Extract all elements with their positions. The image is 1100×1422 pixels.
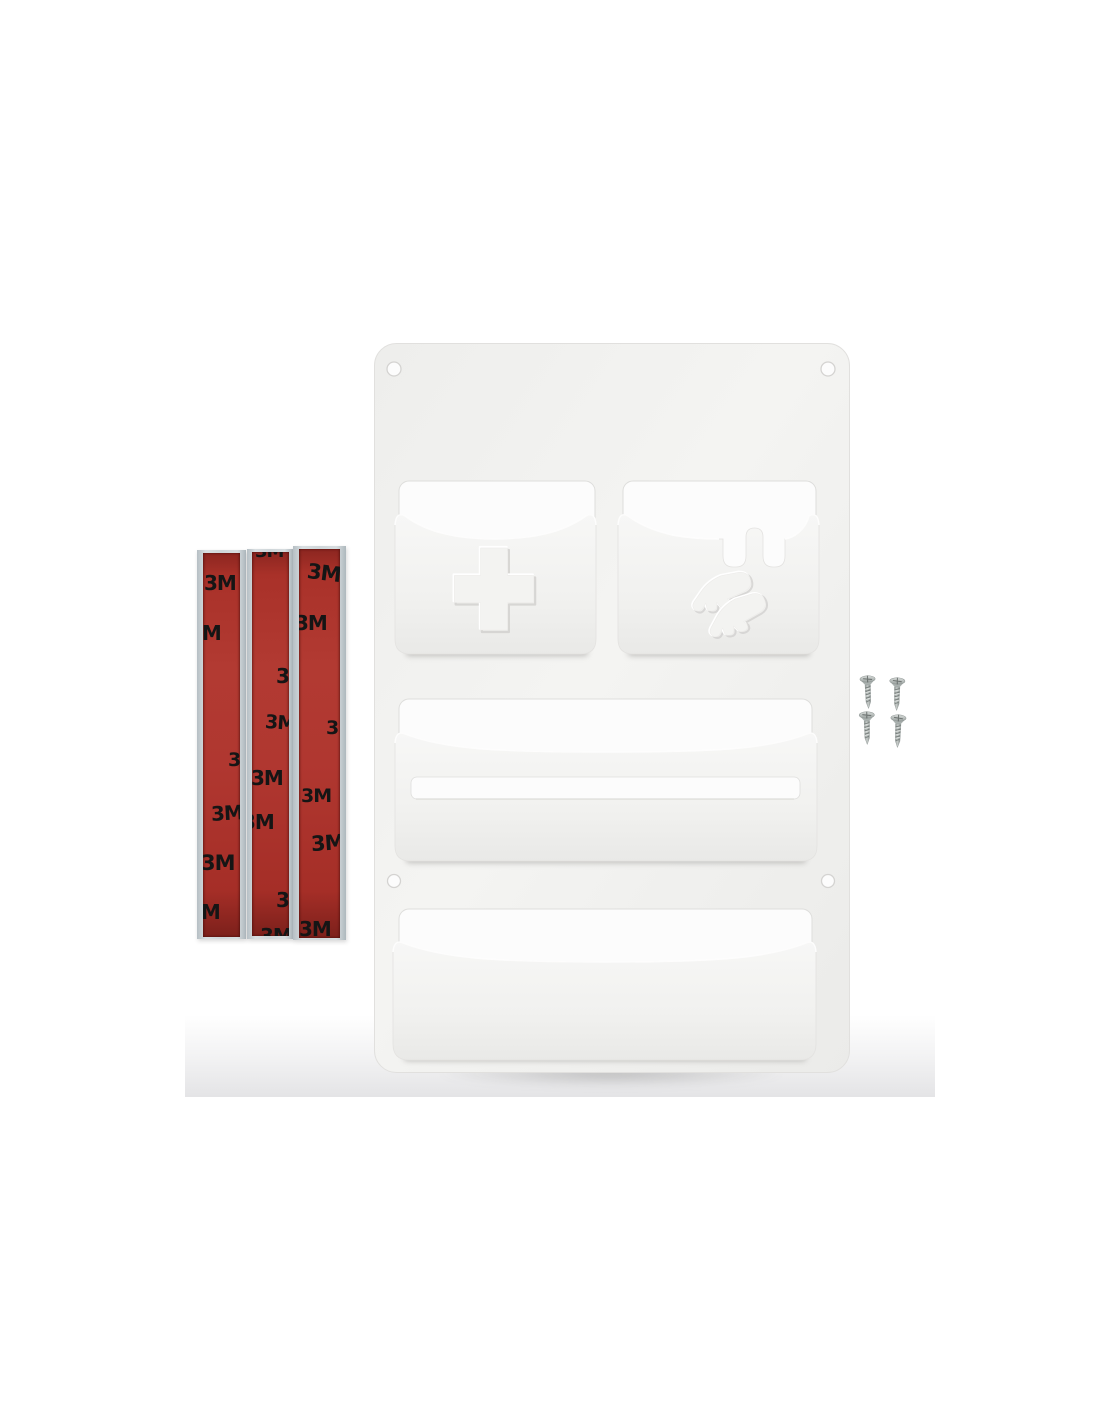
adhesive-strip-2: 3M 3M 3M 3M 3M 3M 3M: [247, 549, 293, 939]
screw-4: [890, 715, 906, 748]
brand-logo-3m: 3M: [203, 853, 235, 874]
brand-logo-3m: 3M: [252, 812, 274, 832]
adhesive-strip-1-tape: 3M 3M 3M 3M 3M 3M: [203, 553, 240, 937]
brand-logo-3m: 3M: [204, 573, 236, 593]
brand-logo-3m: 3M: [301, 787, 331, 806]
screw-1: [860, 676, 876, 709]
brand-logo-3m: 3M: [310, 832, 340, 855]
brand-logo-3m: 3M: [299, 919, 331, 938]
brand-logo-3m: 3M: [299, 613, 327, 633]
product-photo: 3M 3M 3M 3M 3M 3M 3M 3M 3M 3M 3M 3M 3M 3…: [0, 0, 1100, 1422]
mounting-hole-top-right: [821, 362, 835, 376]
adhesive-strip-1: 3M 3M 3M 3M 3M 3M: [197, 550, 246, 939]
mounting-hole-top-left: [387, 362, 401, 376]
brand-logo-3m: 3M: [255, 552, 283, 561]
mounting-hole-mid-right: [822, 875, 835, 888]
brand-logo-3m: 3M: [203, 902, 220, 922]
middle-pocket-slot: [411, 777, 800, 799]
brand-logo-3m: 3M: [260, 926, 289, 936]
brand-logo-3m: 3M: [276, 890, 289, 910]
organizer-panel: [374, 343, 850, 1073]
adhesive-strip-3-tape: 3M 3M 3M 3M 3M 3M: [299, 549, 340, 938]
pocket-middle: [395, 733, 817, 861]
brand-logo-3m: 3M: [203, 623, 221, 643]
brand-logo-3m: 3M: [326, 719, 340, 738]
screw-3: [859, 712, 875, 745]
mounting-screws: [849, 669, 921, 761]
brand-logo-3m: 3M: [228, 751, 240, 770]
screw-2: [889, 678, 905, 711]
mounting-hole-mid-left: [388, 875, 401, 888]
brand-logo-3m: 3M: [264, 713, 289, 734]
brand-logo-3m: 3M: [306, 561, 340, 586]
adhesive-strip-3: 3M 3M 3M 3M 3M 3M: [293, 546, 346, 940]
adhesive-strip-2-tape: 3M 3M 3M 3M 3M 3M 3M: [252, 552, 289, 936]
brand-logo-3m: 3M: [252, 768, 283, 788]
brand-logo-3m: 3M: [276, 666, 289, 686]
brand-logo-3m: 3M: [210, 802, 240, 824]
